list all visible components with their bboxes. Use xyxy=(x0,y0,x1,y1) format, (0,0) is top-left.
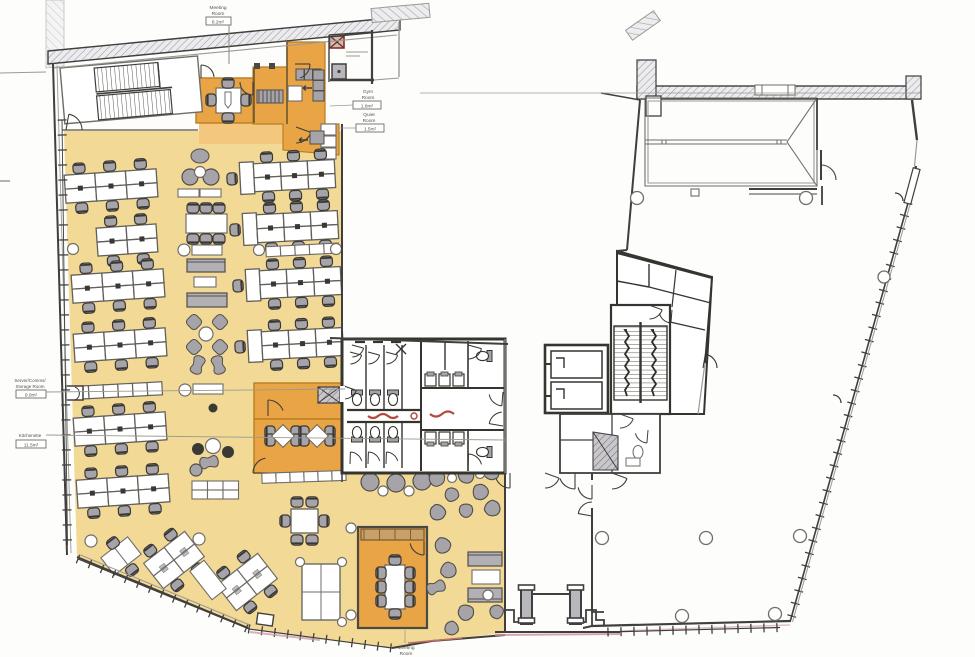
svg-text:Quiet: Quiet xyxy=(363,112,375,118)
svg-text:Gym: Gym xyxy=(363,89,373,95)
svg-text:Room: Room xyxy=(212,11,225,17)
svg-text:Kitchenette: Kitchenette xyxy=(19,433,42,438)
svg-text:8.2m²: 8.2m² xyxy=(212,20,225,26)
svg-text:Storage Room: Storage Room xyxy=(15,384,44,389)
svg-text:Room: Room xyxy=(400,651,413,657)
svg-text:1.5m²: 1.5m² xyxy=(364,127,377,133)
svg-text:Meeting: Meeting xyxy=(397,645,414,651)
svg-text:Meeting: Meeting xyxy=(209,5,226,11)
svg-text:1.8m²: 1.8m² xyxy=(361,104,374,110)
svg-text:9.0m²: 9.0m² xyxy=(25,393,38,399)
svg-text:11.5m²: 11.5m² xyxy=(24,443,39,449)
svg-text:Server/Comms/: Server/Comms/ xyxy=(14,378,46,383)
svg-text:Room: Room xyxy=(363,118,376,124)
svg-text:Room: Room xyxy=(362,95,375,101)
